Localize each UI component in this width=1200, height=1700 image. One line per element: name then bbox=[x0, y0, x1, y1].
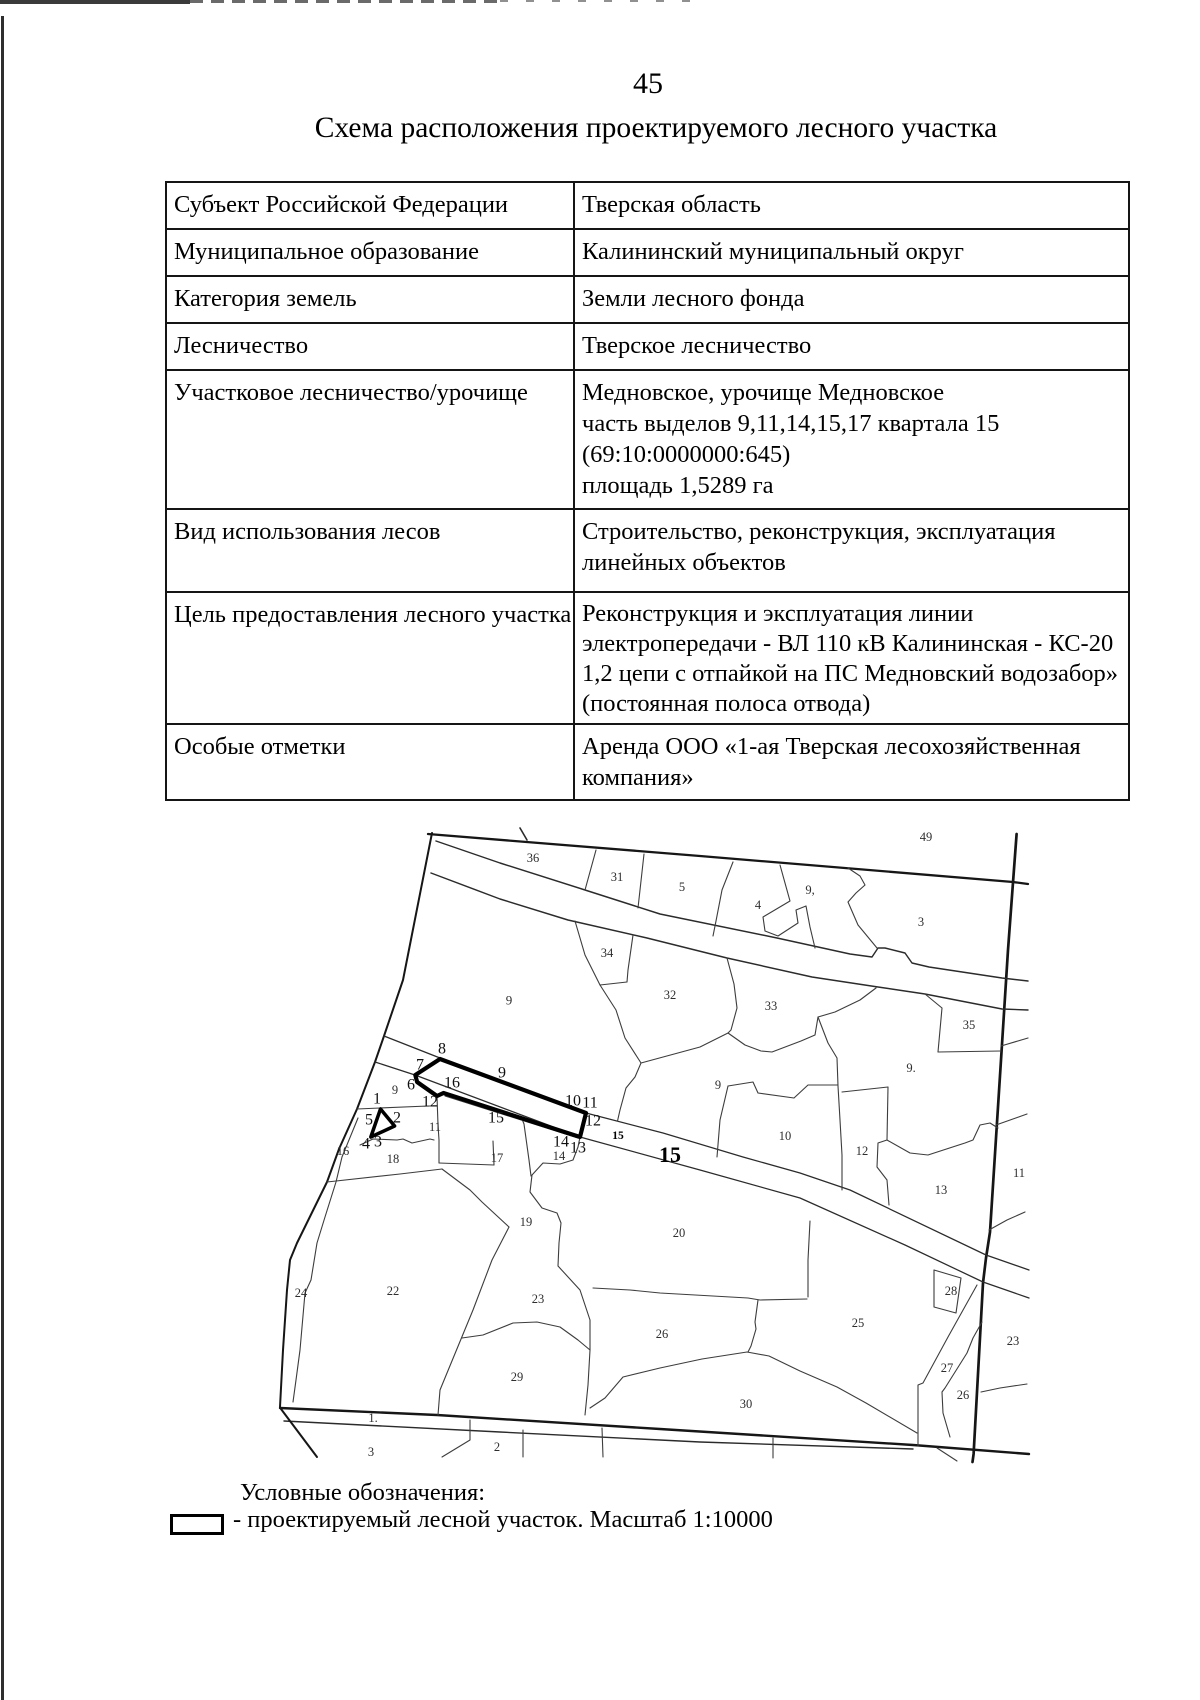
svg-text:29: 29 bbox=[511, 1370, 524, 1384]
svg-text:23: 23 bbox=[1007, 1334, 1020, 1348]
svg-text:25: 25 bbox=[852, 1316, 865, 1330]
svg-text:2: 2 bbox=[494, 1440, 500, 1454]
svg-text:3: 3 bbox=[918, 915, 924, 929]
svg-text:4: 4 bbox=[362, 1135, 370, 1152]
svg-text:6: 6 bbox=[407, 1076, 415, 1093]
svg-text:22: 22 bbox=[387, 1284, 400, 1298]
svg-text:15: 15 bbox=[612, 1130, 624, 1142]
svg-text:9: 9 bbox=[715, 1078, 721, 1092]
svg-text:34: 34 bbox=[601, 946, 614, 960]
svg-text:14: 14 bbox=[553, 1133, 569, 1150]
svg-text:19: 19 bbox=[520, 1215, 533, 1229]
svg-text:49: 49 bbox=[920, 830, 933, 844]
svg-text:14: 14 bbox=[553, 1149, 566, 1163]
svg-text:36: 36 bbox=[527, 851, 540, 865]
svg-text:16: 16 bbox=[444, 1074, 460, 1091]
svg-text:7: 7 bbox=[416, 1056, 424, 1073]
svg-text:26: 26 bbox=[957, 1388, 970, 1402]
svg-text:27: 27 bbox=[941, 1361, 954, 1375]
svg-text:24: 24 bbox=[295, 1286, 308, 1300]
svg-text:17: 17 bbox=[491, 1151, 504, 1165]
svg-text:8: 8 bbox=[438, 1040, 446, 1057]
svg-text:28: 28 bbox=[945, 1284, 958, 1298]
svg-text:12: 12 bbox=[856, 1144, 869, 1158]
svg-text:18: 18 bbox=[387, 1152, 400, 1166]
svg-text:3: 3 bbox=[368, 1445, 374, 1459]
svg-text:35: 35 bbox=[963, 1018, 976, 1032]
svg-text:32: 32 bbox=[664, 988, 677, 1002]
svg-text:5: 5 bbox=[365, 1111, 373, 1128]
svg-text:13: 13 bbox=[570, 1139, 586, 1156]
svg-text:9: 9 bbox=[392, 1083, 398, 1097]
svg-text:31: 31 bbox=[611, 870, 624, 884]
svg-text:20: 20 bbox=[673, 1226, 686, 1240]
svg-text:12: 12 bbox=[422, 1093, 438, 1110]
svg-text:15: 15 bbox=[488, 1109, 504, 1126]
svg-text:11: 11 bbox=[1013, 1166, 1025, 1180]
svg-text:13: 13 bbox=[935, 1183, 948, 1197]
svg-text:10: 10 bbox=[565, 1092, 581, 1109]
svg-text:23: 23 bbox=[532, 1292, 545, 1306]
svg-text:1: 1 bbox=[373, 1090, 381, 1107]
svg-text:9: 9 bbox=[498, 1064, 506, 1081]
svg-text:10: 10 bbox=[779, 1129, 792, 1143]
svg-text:9,: 9, bbox=[805, 883, 814, 897]
svg-text:30: 30 bbox=[740, 1397, 753, 1411]
svg-text:9.: 9. bbox=[906, 1061, 915, 1075]
svg-text:4: 4 bbox=[755, 898, 762, 912]
svg-text:1.: 1. bbox=[368, 1411, 377, 1425]
svg-text:33: 33 bbox=[765, 999, 778, 1013]
svg-text:11: 11 bbox=[429, 1120, 441, 1134]
svg-text:16: 16 bbox=[337, 1144, 350, 1158]
svg-text:9: 9 bbox=[506, 992, 513, 1007]
svg-text:5: 5 bbox=[679, 880, 685, 894]
svg-text:2: 2 bbox=[393, 1109, 401, 1126]
svg-text:15: 15 bbox=[659, 1142, 681, 1167]
svg-text:3: 3 bbox=[374, 1133, 382, 1150]
svg-text:26: 26 bbox=[656, 1327, 669, 1341]
svg-text:11: 11 bbox=[582, 1094, 597, 1111]
svg-text:12: 12 bbox=[585, 1112, 601, 1129]
